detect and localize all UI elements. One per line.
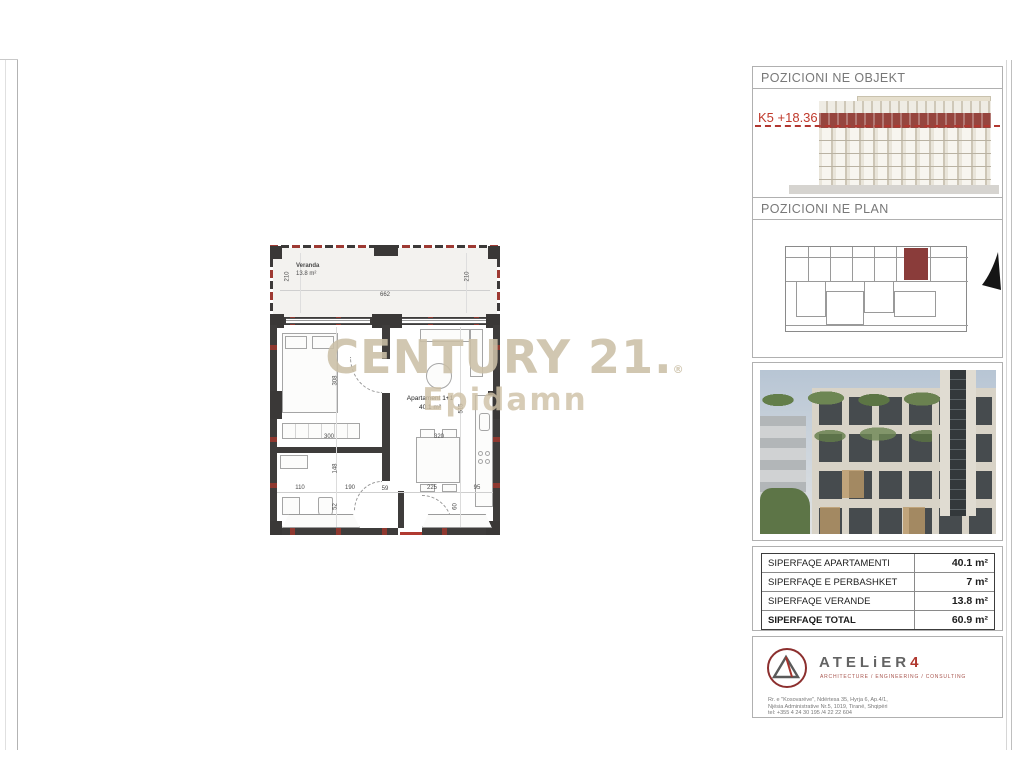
wall [277, 447, 390, 453]
area-value: 60.9 m² [915, 614, 994, 626]
key-plan-line [786, 325, 968, 326]
dim-label: 52 [333, 495, 340, 519]
key-plan-line [874, 247, 875, 281]
photo-tower [940, 370, 976, 516]
dim-label: 60 [453, 495, 460, 519]
table-row: SIPERFAQE VERANDE 13.8 m² [762, 591, 994, 610]
column [270, 391, 282, 419]
page-edge-line [1011, 60, 1012, 750]
photo-tower-glass [950, 370, 966, 516]
photo-greenery [760, 488, 810, 534]
area-label: SIPERFAQE APARTAMENTI [762, 554, 915, 572]
area-label: SIPERFAQE VERANDE [762, 592, 915, 610]
sofa [420, 329, 470, 342]
key-plan-line [896, 247, 897, 281]
dim-label: 210 [285, 265, 292, 289]
area-value: 7 m² [915, 576, 994, 588]
wall [493, 325, 500, 535]
level-dashed-line [755, 125, 1000, 127]
key-plan-highlighted-unit [904, 248, 928, 280]
elevation-attic-floor [819, 101, 991, 113]
page-edge-line [1006, 60, 1007, 750]
panel-pozicioni-plan-header: POZICIONI NE PLAN [752, 197, 1003, 220]
drawing-sheet: Veranda 13.8 m² 210 210 662 [0, 0, 1024, 768]
firm-address: Rr. e "Kosovarëve", Ndërtesa 35, Hyrja 6… [768, 697, 888, 717]
key-plan-room [894, 291, 936, 317]
panel-areas-table: SIPERFAQE APARTAMENTI 40.1 m² SIPERFAQE … [752, 546, 1003, 631]
key-plan-line [808, 247, 809, 281]
pillow [312, 336, 334, 349]
dining-table [416, 437, 460, 483]
registered-icon: ® [673, 363, 685, 376]
panel-building-photo [752, 362, 1003, 541]
key-plan-room [864, 281, 894, 313]
table-row: SIPERFAQE E PERBASHKET 7 m² [762, 572, 994, 591]
photo-greenery [812, 426, 932, 448]
areas-table: SIPERFAQE APARTAMENTI 40.1 m² SIPERFAQE … [761, 553, 995, 630]
window-sill [282, 514, 360, 528]
dimension-line [280, 290, 490, 291]
key-plan-line [786, 257, 968, 258]
area-label: SIPERFAQE TOTAL [762, 611, 915, 629]
window [286, 318, 370, 324]
firm-address-line: tel: +355 4 24 30 195 /4 22 22 604 [768, 710, 888, 717]
door-arc [350, 357, 382, 393]
photo-lit-window [820, 507, 840, 534]
panel-title: POZICIONI NE PLAN [753, 198, 1002, 216]
page-edge-line [0, 59, 18, 60]
column [270, 246, 282, 259]
key-plan-line [852, 247, 853, 281]
stove-burner [478, 459, 483, 464]
veranda-area [273, 248, 497, 317]
area-value: 40.1 m² [915, 557, 994, 569]
area-value: 13.8 m² [915, 595, 994, 607]
bathroom-vanity [280, 455, 308, 469]
firm-name: ATELiER4 [819, 654, 922, 671]
table-row-total: SIPERFAQE TOTAL 60.9 m² [762, 610, 994, 629]
wall [270, 325, 277, 535]
column [270, 521, 282, 535]
stove-burner [485, 459, 490, 464]
dim-label: 190 [338, 485, 362, 492]
photo-greenery [760, 390, 944, 412]
panel-pozicioni-objekt-header: POZICIONI NE OBJEKT [752, 66, 1003, 89]
column [488, 246, 500, 259]
page-edge-line [17, 60, 18, 750]
stove-burner [485, 451, 490, 456]
washing-machine [282, 497, 300, 515]
elevation-ground [789, 185, 999, 194]
veranda-label: Veranda [296, 263, 336, 270]
area-label: SIPERFAQE E PERBASHKET [762, 573, 915, 591]
key-plan-line [930, 247, 931, 281]
entrance-marker [400, 532, 422, 535]
dimension-line [460, 327, 461, 527]
unit-area-label: 40.1 m² [388, 404, 472, 412]
panel-title: POZICIONI NE OBJEKT [753, 67, 1002, 85]
dim-label: 59 [378, 486, 392, 493]
panel-key-plan [752, 219, 1003, 358]
photo-lit-window [842, 470, 864, 498]
photo-lit-window [903, 507, 925, 534]
atelier4-logo-icon [767, 648, 807, 688]
panel-building-elevation: K5 +18.36 [752, 88, 1003, 198]
key-plan-room [826, 291, 864, 325]
floor-plan: Veranda 13.8 m² 210 210 662 [270, 245, 500, 535]
dim-label: 320 [428, 434, 450, 441]
wall [398, 491, 404, 528]
building-photo [760, 370, 996, 534]
sink [479, 413, 490, 431]
dim-label: 300 [318, 434, 340, 441]
pillow [285, 336, 307, 349]
panel-architect-logo: ATELiER4 ARCHITECTURE / ENGINEERING / CO… [752, 636, 1003, 718]
column [374, 245, 398, 256]
wall [270, 528, 398, 535]
firm-name-four: 4 [910, 654, 922, 671]
key-plan-outline [785, 246, 967, 332]
dim-label: 225 [418, 485, 446, 492]
elevation-floors [819, 128, 991, 185]
dim-label: 662 [370, 292, 400, 299]
dim-label: 210 [465, 265, 472, 289]
window [402, 318, 486, 324]
dimension-line [300, 253, 301, 313]
veranda-area-label: 13.8 m² [296, 271, 336, 278]
table-row: SIPERFAQE APARTAMENTI 40.1 m² [762, 554, 994, 572]
stove-burner [478, 451, 483, 456]
elevation-building [819, 101, 991, 185]
sofa [470, 329, 483, 377]
level-label: K5 +18.36 [758, 110, 818, 125]
firm-subtitle: ARCHITECTURE / ENGINEERING / CONSULTING [820, 674, 966, 680]
unit-label: Apartament 1+1 [388, 395, 472, 403]
dim-label: 148 [333, 457, 340, 481]
key-plan-line [830, 247, 831, 281]
dim-label: 308 [333, 369, 340, 393]
north-arrow-icon [979, 250, 1003, 294]
round-table [426, 363, 452, 389]
wall [382, 325, 390, 359]
page-edge-line [5, 60, 6, 750]
key-plan-room [796, 281, 826, 317]
dim-label: 110 [288, 485, 312, 492]
firm-address-line: Rr. e "Kosovarëve", Ndërtesa 35, Hyrja 6… [768, 697, 888, 704]
dim-label: 95 [468, 485, 486, 492]
